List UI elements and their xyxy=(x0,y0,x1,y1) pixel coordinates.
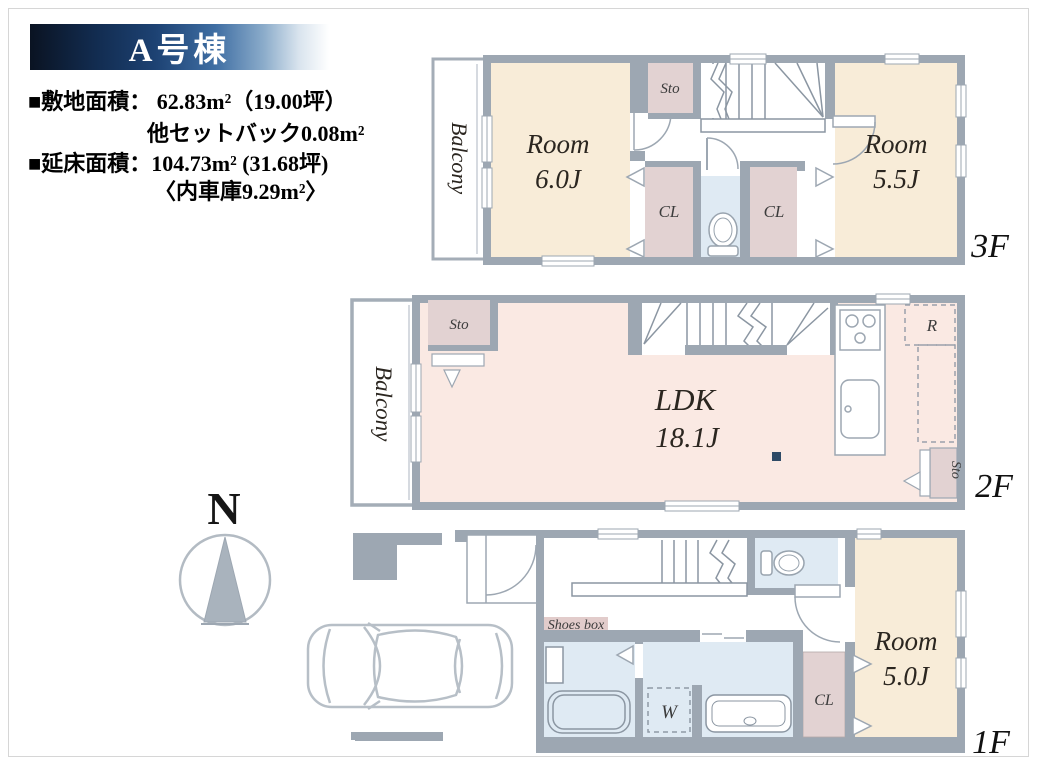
stove-icon xyxy=(840,310,880,350)
washer-label: W xyxy=(661,702,679,723)
room-5_5j-area xyxy=(835,63,957,257)
building-title-banner: A号棟 xyxy=(30,24,329,70)
room-6_0j-name: Room xyxy=(526,129,590,159)
floor-plan-1f: Shoes box Room 5.0J CL W 1F xyxy=(340,525,1025,764)
setback-text: 他セットバック0.08m² xyxy=(147,116,364,148)
kitchen-counter xyxy=(835,305,885,455)
closet-1f-label: CL xyxy=(814,692,834,709)
floor-plan-3f: Balcony xyxy=(430,50,1015,268)
room-5_5j-size: 5.5J xyxy=(873,164,921,194)
storage-2f-top-label: Sto xyxy=(449,317,469,333)
closet-left-label: CL xyxy=(659,202,680,221)
toilet-icon-3f xyxy=(708,213,738,256)
toilet-icon-1f xyxy=(761,551,804,575)
room-5_0j-name: Room xyxy=(874,626,938,656)
floor-plan-2f: Balcony Sto xyxy=(348,292,1020,514)
entrance-door xyxy=(467,535,538,603)
balcony-3f-label: Balcony xyxy=(447,122,472,194)
washbasin-icon xyxy=(706,695,791,732)
balcony-3f: Balcony xyxy=(433,59,490,259)
ldk-size: 18.1J xyxy=(655,422,720,454)
storage-3f-label: Sto xyxy=(660,81,680,97)
pillar-marker xyxy=(772,452,781,461)
garage-area-text: 〈内車庫9.29m²〉 xyxy=(154,174,327,206)
floor-2f-label: 2F xyxy=(975,468,1014,505)
floorplan-sheet: A号棟 ■敷地面積： 62.83m²（19.00坪） 他セットバック0.08m²… xyxy=(0,0,1037,764)
closet-right-label: CL xyxy=(764,202,785,221)
room-6_0j-size: 6.0J xyxy=(535,164,583,194)
kitchen-sink-icon xyxy=(841,380,879,438)
compass-needle xyxy=(204,537,246,622)
shoes-box-label: Shoes box xyxy=(548,618,605,633)
room-6_0j-area xyxy=(491,63,630,257)
balcony-2f-label: Balcony xyxy=(371,366,396,442)
floor-1f-label: 1F xyxy=(972,724,1011,761)
site-area-text: ■敷地面積： 62.83m²（19.00坪） xyxy=(28,84,347,116)
compass-north-label: N xyxy=(207,483,240,534)
north-compass-icon: N xyxy=(178,478,278,638)
ldk-name: LDK xyxy=(654,382,718,417)
floor-3f-label: 3F xyxy=(970,228,1010,265)
building-title: A号棟 xyxy=(129,23,231,71)
room-5_5j-name: Room xyxy=(864,129,928,159)
storage-2f-bottom-label: Sto xyxy=(948,461,963,479)
refrigerator-label: R xyxy=(926,316,938,335)
room-5_0j-size: 5.0J xyxy=(883,661,931,691)
